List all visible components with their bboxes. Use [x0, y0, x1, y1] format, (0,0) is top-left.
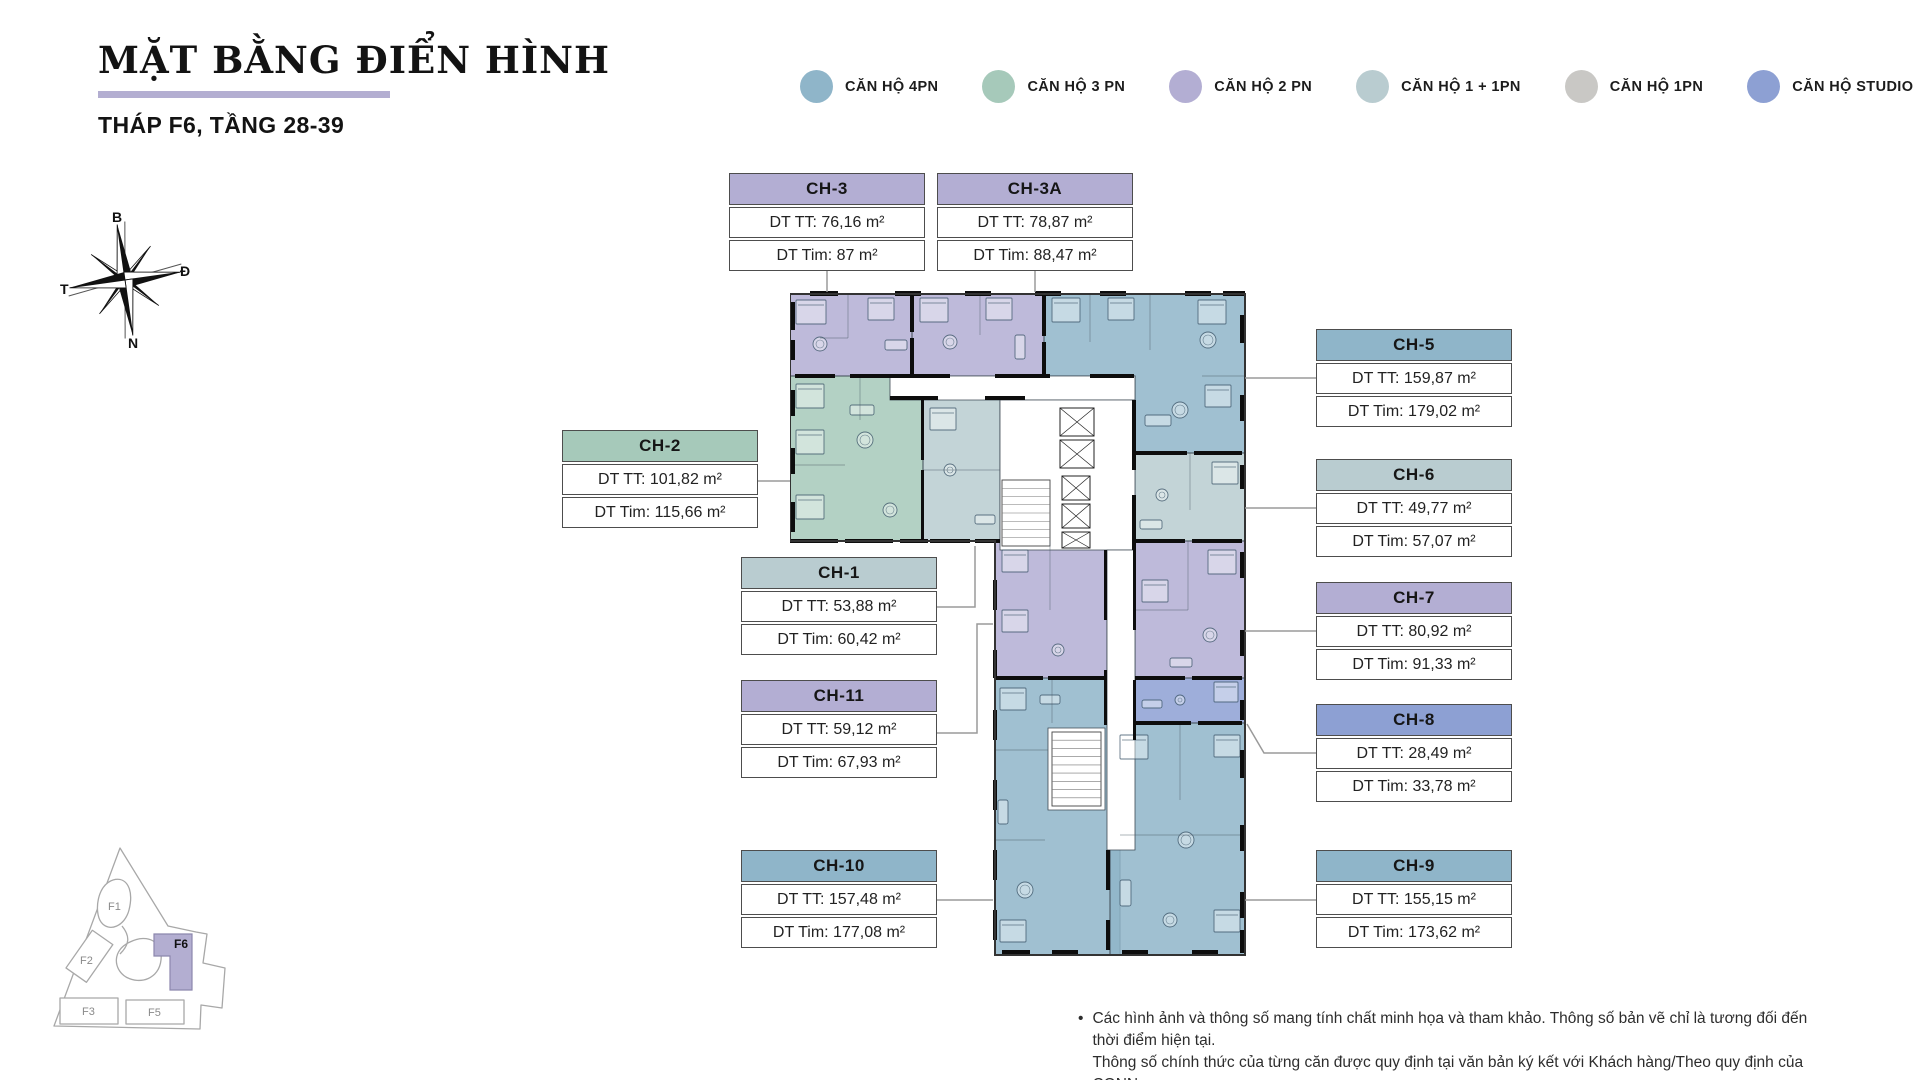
unit-dt-tt: DT TT: 157,48 m²	[741, 884, 937, 915]
table-icon	[1175, 695, 1185, 705]
legend-item-1plus1pn: CĂN HỘ 1 + 1PN	[1356, 70, 1521, 103]
wall-segment	[1122, 950, 1148, 955]
legend-item-2pn: CĂN HỘ 2 PN	[1169, 70, 1312, 103]
wall-segment	[1198, 721, 1242, 725]
site-building-f1	[97, 879, 130, 927]
unit-dt-tt: DT TT: 101,82 m²	[562, 464, 758, 495]
table-icon	[1163, 913, 1177, 927]
unit-dt-tim: DT Tim: 67,93 m²	[741, 747, 937, 778]
site-building-f3	[60, 998, 118, 1024]
legend-label: CĂN HỘ 2 PN	[1214, 79, 1312, 95]
unit-region-ch-10	[995, 678, 1120, 955]
unit-name: CH-8	[1316, 704, 1512, 736]
bed-icon	[930, 408, 956, 430]
wall-segment	[810, 291, 838, 296]
sofa-icon	[1015, 335, 1025, 359]
wall-segment	[900, 539, 928, 543]
wall-segment	[790, 448, 795, 474]
sofa-icon	[850, 405, 874, 415]
unit-dt-tt: DT TT: 49,77 m²	[1316, 493, 1512, 524]
wall-segment	[1240, 630, 1245, 656]
wall-segment	[1002, 950, 1030, 955]
sofa-icon	[1120, 880, 1131, 906]
unit-dt-tim: DT Tim: 173,62 m²	[1316, 917, 1512, 948]
wall-segment	[975, 539, 1000, 543]
site-building-f5	[126, 1000, 184, 1024]
wall-segment	[921, 470, 924, 540]
unit-region-ch-3	[790, 294, 912, 376]
corridor	[890, 376, 1135, 400]
unit-dt-tt: DT TT: 159,87 m²	[1316, 363, 1512, 394]
site-label-f3: F3	[82, 1006, 95, 1018]
compass-north-label: B	[112, 209, 122, 225]
wall-segment	[895, 291, 921, 296]
table-icon	[883, 503, 897, 517]
wall-segment	[890, 374, 950, 378]
wall-segment	[993, 910, 997, 940]
legend-label: CĂN HỘ 4PN	[845, 79, 938, 95]
unit-region-ch-11	[995, 541, 1107, 678]
unit-card-ch-9: CH-9 DT TT: 155,15 m² DT Tim: 173,62 m²	[1316, 850, 1512, 948]
wall-segment	[1052, 950, 1078, 955]
title-accent-bar	[98, 91, 390, 98]
bed-icon	[1214, 910, 1240, 932]
site-building-f2	[66, 930, 113, 982]
bed-icon	[796, 495, 824, 519]
bed-icon	[1142, 580, 1168, 602]
wall-segment	[910, 338, 914, 376]
wall-segment	[1132, 400, 1136, 470]
compass-rose-icon: B Đ T N	[58, 198, 198, 358]
unit-region-ch-1	[923, 398, 1000, 541]
wall-segment	[790, 390, 795, 416]
connector-ch-8	[1247, 724, 1316, 753]
wall-segment	[993, 580, 997, 610]
unit-card-ch-3: CH-3 DT TT: 76,16 m² DT Tim: 87 m²	[729, 173, 925, 271]
table-icon	[1178, 832, 1194, 848]
wall-segment	[1240, 395, 1245, 421]
unit-dt-tim: DT Tim: 115,66 m²	[562, 497, 758, 528]
wall-segment	[993, 850, 997, 880]
wall-segment	[1240, 315, 1245, 343]
unit-card-ch-11: CH-11 DT TT: 59,12 m² DT Tim: 67,93 m²	[741, 680, 937, 778]
wall-segment	[845, 539, 893, 543]
unit-region-ch-8	[1135, 678, 1245, 723]
unit-region-ch-2	[790, 376, 923, 541]
connector-lines	[0, 0, 1920, 1080]
wall-segment	[1133, 550, 1136, 630]
wall-segment	[1035, 291, 1061, 296]
legend-label: CĂN HỘ STUDIO	[1792, 79, 1913, 95]
site-label-f1: F1	[108, 901, 121, 913]
compass-east-label: Đ	[180, 263, 190, 279]
wall-segment	[995, 676, 1043, 680]
bed-icon	[796, 430, 824, 454]
unit-dt-tim: DT Tim: 60,42 m²	[741, 624, 937, 655]
wall-segment	[1240, 750, 1245, 778]
site-label-f5: F5	[148, 1007, 161, 1019]
wall-segment	[965, 291, 991, 296]
site-key-map: F1 F2 F3 F5 F6	[50, 822, 235, 1054]
wall-segment	[1048, 676, 1104, 680]
wall-segment	[1135, 676, 1185, 680]
unit-dt-tt: DT TT: 76,16 m²	[729, 207, 925, 238]
bed-icon	[1000, 920, 1026, 942]
wall-segment	[1223, 291, 1245, 296]
unit-name: CH-2	[562, 430, 758, 462]
bed-icon	[1000, 688, 1026, 710]
disclaimer-bullet: •	[1078, 1008, 1083, 1080]
legend-label: CĂN HỘ 3 PN	[1027, 79, 1125, 95]
unit-dt-tim: DT Tim: 177,08 m²	[741, 917, 937, 948]
unit-dt-tim: DT Tim: 91,33 m²	[1316, 649, 1512, 680]
wall-segment	[993, 710, 997, 740]
legend-dot-4pn-icon	[800, 70, 833, 103]
wall-segment	[1194, 451, 1242, 455]
wall-segment	[790, 502, 795, 532]
legend: CĂN HỘ 4PN CĂN HỘ 3 PN CĂN HỘ 2 PN CĂN H…	[800, 70, 1913, 103]
sofa-icon	[885, 340, 907, 350]
bed-icon	[920, 298, 948, 322]
wall-segment	[993, 780, 997, 810]
connector-ch-11	[937, 624, 993, 733]
legend-dot-1pn-icon	[1565, 70, 1598, 103]
elevator-icon	[1062, 504, 1090, 528]
wall-segment	[910, 294, 914, 332]
wall-segment	[1240, 700, 1245, 720]
wall-segment	[1042, 342, 1046, 376]
unit-dt-tim: DT Tim: 87 m²	[729, 240, 925, 271]
legend-item-studio: CĂN HỘ STUDIO	[1747, 70, 1913, 103]
sofa-icon	[1140, 520, 1162, 529]
unit-dt-tt: DT TT: 155,15 m²	[1316, 884, 1512, 915]
bed-icon	[1002, 610, 1028, 632]
unit-name: CH-3	[729, 173, 925, 205]
connector-ch-1	[937, 546, 975, 607]
wall-segment	[1106, 850, 1110, 890]
elevator-icon	[1060, 440, 1094, 468]
disclaimer: • Các hình ảnh và thông số mang tính chấ…	[1078, 1008, 1823, 1080]
site-building-f6-highlight	[154, 934, 192, 990]
bed-icon	[1214, 735, 1240, 757]
table-icon	[944, 464, 956, 476]
wall-segment	[1135, 451, 1187, 455]
wall-segment	[790, 302, 795, 330]
wall-segment	[1240, 892, 1245, 918]
stairwell	[1048, 728, 1105, 810]
page-title: MẶT BẰNG ĐIỂN HÌNH	[98, 38, 610, 82]
unit-card-ch-10: CH-10 DT TT: 157,48 m² DT Tim: 177,08 m²	[741, 850, 937, 948]
site-road	[120, 926, 128, 954]
elevator-icon	[1062, 532, 1090, 548]
unit-dt-tt: DT TT: 78,87 m²	[937, 207, 1133, 238]
title-block: MẶT BẰNG ĐIỂN HÌNH THÁP F6, TẦNG 28-39	[98, 38, 610, 139]
site-outline	[54, 848, 225, 1029]
wall-segment	[1042, 294, 1046, 336]
wall-segment	[1100, 291, 1126, 296]
unit-card-ch-6: CH-6 DT TT: 49,77 m² DT Tim: 57,07 m²	[1316, 459, 1512, 557]
wall-segment	[1192, 539, 1242, 543]
bed-icon	[1208, 550, 1236, 574]
unit-name: CH-6	[1316, 459, 1512, 491]
unit-dt-tim: DT Tim: 57,07 m²	[1316, 526, 1512, 557]
wall-segment	[1192, 676, 1242, 680]
unit-name: CH-9	[1316, 850, 1512, 882]
bed-icon	[986, 298, 1012, 320]
unit-card-ch-5: CH-5 DT TT: 159,87 m² DT Tim: 179,02 m²	[1316, 329, 1512, 427]
wall-segment	[1240, 552, 1245, 578]
wall-segment	[790, 340, 795, 360]
table-icon	[1156, 489, 1168, 501]
unit-dt-tt: DT TT: 53,88 m²	[741, 591, 937, 622]
unit-name: CH-3A	[937, 173, 1133, 205]
unit-region-ch-9	[1110, 723, 1245, 955]
sofa-icon	[1170, 658, 1192, 667]
wall-segment	[1106, 920, 1110, 950]
unit-region-ch-3a	[912, 294, 1044, 376]
wall-segment	[1192, 950, 1218, 955]
legend-label: CĂN HỘ 1 + 1PN	[1401, 79, 1521, 95]
unit-card-ch-2: CH-2 DT TT: 101,82 m² DT Tim: 115,66 m²	[562, 430, 758, 528]
sofa-icon	[1040, 695, 1060, 704]
unit-name: CH-7	[1316, 582, 1512, 614]
legend-dot-1plus1pn-icon	[1356, 70, 1389, 103]
wall-segment	[1135, 539, 1185, 543]
elevator-icon	[1060, 408, 1094, 436]
unit-dt-tim: DT Tim: 33,78 m²	[1316, 771, 1512, 802]
bed-icon	[1052, 298, 1080, 322]
bed-icon	[1214, 682, 1238, 702]
unit-card-ch-7: CH-7 DT TT: 80,92 m² DT Tim: 91,33 m²	[1316, 582, 1512, 680]
unit-name: CH-10	[741, 850, 937, 882]
legend-item-4pn: CĂN HỘ 4PN	[800, 70, 938, 103]
bed-icon	[796, 384, 824, 408]
unit-name: CH-1	[741, 557, 937, 589]
disclaimer-text: Các hình ảnh và thông số mang tính chất …	[1092, 1008, 1823, 1080]
table-icon	[1203, 628, 1217, 642]
stair-icon	[1002, 480, 1050, 546]
sofa-icon	[1142, 700, 1162, 708]
wall-segment	[1240, 465, 1245, 489]
wall-segment	[1104, 670, 1107, 725]
bed-icon	[1205, 385, 1231, 407]
compass-south-label: N	[128, 335, 138, 351]
unit-dt-tt: DT TT: 80,92 m²	[1316, 616, 1512, 647]
site-label-f6: F6	[174, 937, 188, 951]
wall-segment	[993, 650, 997, 678]
bed-icon	[1198, 300, 1226, 324]
table-icon	[1172, 402, 1188, 418]
bed-icon	[868, 298, 894, 320]
wall-segment	[1185, 291, 1211, 296]
disclaimer-line-1: Các hình ảnh và thông số mang tính chất …	[1092, 1010, 1807, 1049]
unit-region-ch-5	[1044, 294, 1245, 453]
vertical-corridor	[1107, 550, 1135, 850]
wall-segment	[1090, 374, 1134, 378]
bed-icon	[1002, 550, 1028, 572]
wall-segment	[1135, 721, 1191, 725]
wall-segment	[921, 400, 924, 460]
legend-dot-3pn-icon	[982, 70, 1015, 103]
unit-name: CH-5	[1316, 329, 1512, 361]
legend-item-3pn: CĂN HỘ 3 PN	[982, 70, 1125, 103]
page: MẶT BẰNG ĐIỂN HÌNH THÁP F6, TẦNG 28-39 C…	[0, 0, 1920, 1080]
wall-segment	[790, 539, 838, 543]
bed-icon	[796, 300, 826, 324]
wall-segment	[930, 539, 970, 543]
table-icon	[857, 432, 873, 448]
legend-dot-2pn-icon	[1169, 70, 1202, 103]
compass-west-label: T	[60, 281, 69, 297]
unit-card-ch-1: CH-1 DT TT: 53,88 m² DT Tim: 60,42 m²	[741, 557, 937, 655]
wall-segment	[890, 396, 938, 400]
stair-icon	[1052, 732, 1101, 806]
wall-segment	[1104, 550, 1107, 620]
wall-segment	[1240, 825, 1245, 851]
unit-dt-tim: DT Tim: 179,02 m²	[1316, 396, 1512, 427]
unit-name: CH-11	[741, 680, 937, 712]
page-subtitle: THÁP F6, TẦNG 28-39	[98, 112, 610, 139]
unit-region-ch-7	[1135, 541, 1245, 678]
legend-dot-studio-icon	[1747, 70, 1780, 103]
core	[1000, 400, 1135, 550]
sofa-icon	[975, 515, 995, 524]
sofa-icon	[998, 800, 1008, 824]
unit-dt-tt: DT TT: 59,12 m²	[741, 714, 937, 745]
bed-icon	[1108, 298, 1134, 320]
bed-icon	[1212, 462, 1238, 484]
unit-region-ch-6	[1135, 453, 1245, 541]
table-icon	[1200, 332, 1216, 348]
elevator-icon	[1062, 476, 1090, 500]
disclaimer-line-2: Thông số chính thức của từng căn được qu…	[1092, 1054, 1803, 1080]
wall-segment	[1133, 680, 1136, 740]
wall-segment	[795, 374, 835, 378]
table-icon	[813, 337, 827, 351]
sofa-icon	[1145, 415, 1171, 426]
wall-segment	[850, 374, 895, 378]
bed-icon	[1120, 735, 1148, 759]
legend-label: CĂN HỘ 1PN	[1610, 79, 1703, 95]
unit-card-ch-8: CH-8 DT TT: 28,49 m² DT Tim: 33,78 m²	[1316, 704, 1512, 802]
unit-card-ch-3a: CH-3A DT TT: 78,87 m² DT Tim: 88,47 m²	[937, 173, 1133, 271]
wall-segment	[985, 396, 1025, 400]
wall-segment	[1240, 930, 1245, 953]
wall-segment	[1132, 495, 1136, 550]
wall-segment	[995, 374, 1050, 378]
table-icon	[1017, 882, 1033, 898]
unit-dt-tt: DT TT: 28,49 m²	[1316, 738, 1512, 769]
table-icon	[943, 335, 957, 349]
site-pool	[116, 938, 161, 980]
unit-dt-tim: DT Tim: 88,47 m²	[937, 240, 1133, 271]
table-icon	[1052, 644, 1064, 656]
site-label-f2: F2	[80, 955, 93, 967]
legend-item-1pn: CĂN HỘ 1PN	[1565, 70, 1703, 103]
